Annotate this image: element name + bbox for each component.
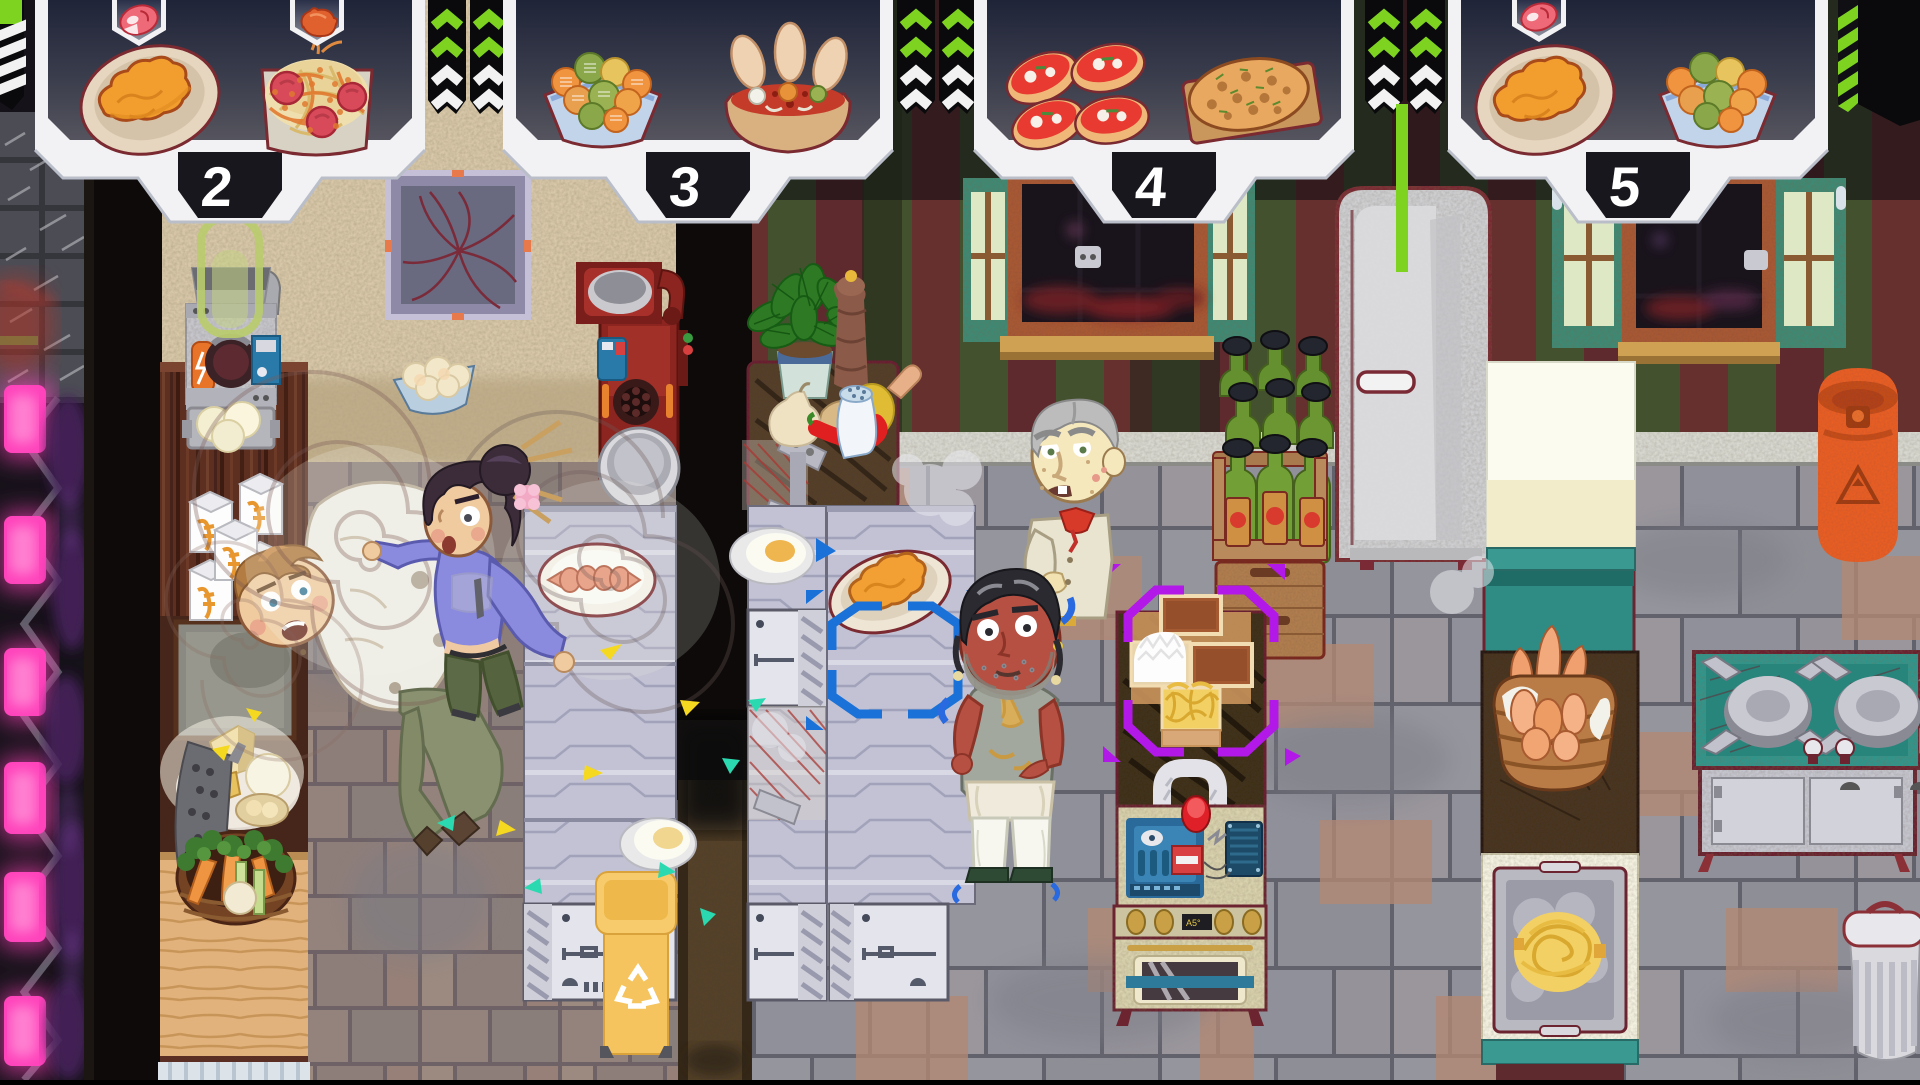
svg-text:A5°: A5° <box>1186 918 1201 928</box>
svg-text:5: 5 <box>1607 155 1643 218</box>
svg-text:3: 3 <box>667 155 703 218</box>
svg-text:4: 4 <box>1133 155 1169 218</box>
svg-text:2: 2 <box>199 155 235 218</box>
